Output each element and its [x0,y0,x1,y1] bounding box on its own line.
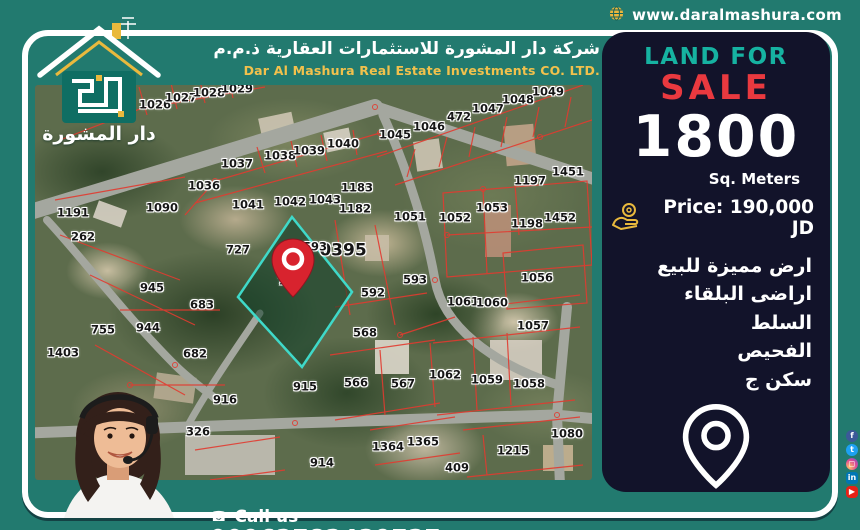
website-link[interactable]: www.daralmashura.com [632,6,842,24]
price-row: Price: 190,000 JD [602,197,830,239]
parcel-number: 1043 [309,194,341,206]
parcel-number: 1045 [379,129,411,141]
listing-description: ارض مميزة للبيع اراضى البلقاء السلط الفح… [602,252,830,395]
parcel-number: 1451 [552,166,584,178]
social-bar: ft◻in▶ [846,430,858,498]
facebook-icon[interactable]: f [846,430,858,442]
parcel-number: 472 [447,111,471,123]
parcel-number: 262 [71,231,95,243]
parcel-number: 1053 [476,202,508,214]
linkedin-icon[interactable]: in [846,472,858,484]
parcel-number: 1403 [47,347,79,359]
parcel-number: 593 [403,274,427,286]
sale-label: SALE [602,68,830,108]
phone-icon: ☎ [210,510,227,525]
parcel-number: 1452 [544,212,576,224]
parcel-number: 1040 [327,138,359,150]
parcel-number: 1090 [146,202,178,214]
desc-line: سكن ج [620,366,812,395]
parcel-number: 1197 [514,175,546,187]
parcel-number: 409 [445,462,469,474]
parcel-number: 1365 [407,436,439,448]
desc-line: اراضى البلقاء السلط [620,280,812,337]
parcel-number: 568 [353,327,377,339]
parcel-number: 1041 [232,199,264,211]
parcel-number: 1036 [188,180,220,192]
desc-line: الفحيص [620,337,812,366]
listing-panel: LAND FOR SALE 1800 Sq. Meters Price: 190… [602,32,830,492]
parcel-number: 1052 [439,212,471,224]
call-us-label: Call us [234,508,298,527]
contact-block: ☎ Call us 00962782439737 [210,508,441,530]
parcel-number: 1215 [497,445,529,457]
parcel-number: 915 [293,381,317,393]
map-location-pin-icon [270,237,316,299]
land-for-label: LAND FOR [602,44,830,70]
money-hand-icon [612,202,642,234]
parcel-number: 1056 [521,272,553,284]
logo-wordmark: دار المشورة [28,123,170,145]
area-value: 1800 [602,108,830,168]
parcel-number: 916 [213,394,237,406]
support-agent-photo [44,380,194,518]
globe-icon [609,6,624,25]
parcel-number: 1051 [394,211,426,223]
parcel-number: 567 [391,378,415,390]
parcel-number: 945 [140,282,164,294]
parcel-number: 1037 [221,158,253,170]
parcel-number: 1062 [429,369,461,381]
parcel-number: 566 [344,377,368,389]
parcel-number: 1047 [472,103,504,115]
price-label: Price: 190,000 JD [642,197,814,239]
parcel-number: 1059 [471,374,503,386]
company-header: شركة دار المشورة للاستثمارات العقارية ذ.… [213,39,600,78]
parcel-number: 1049 [532,86,564,98]
parcel-number: 727 [226,244,250,256]
parcel-number: 1057 [517,320,549,332]
parcel-number: 1198 [511,218,543,230]
company-logo: دار المشورة [28,13,170,153]
parcel-number: 944 [136,322,160,334]
parcel-number: 1046 [413,121,445,133]
location-name: الفحيص [602,490,830,492]
parcel-number: 1080 [551,428,583,440]
company-name-arabic: شركة دار المشورة للاستثمارات العقارية ذ.… [213,39,600,59]
parcel-number: 1364 [372,441,404,453]
parcel-number: 1061 [447,296,479,308]
parcel-number: 1048 [502,94,534,106]
location-pin-icon [602,402,830,490]
parcel-number: 914 [310,457,334,469]
parcel-number: 1060 [476,297,508,309]
company-name-english: Dar Al Mashura Real Estate Investments C… [213,63,600,78]
parcel-number: 1042 [274,196,306,208]
desc-line: ارض مميزة للبيع [620,252,812,281]
parcel-number: 1191 [57,207,89,219]
parcel-number: 755 [91,324,115,336]
instagram-icon[interactable]: ◻ [846,458,858,470]
parcel-number: 682 [183,348,207,360]
parcel-number: 1058 [513,378,545,390]
parcel-number: 592 [361,287,385,299]
twitter-icon[interactable]: t [846,444,858,456]
parcel-number: 1183 [341,182,373,194]
real-estate-flyer: www.daralmashura.com شركة دار المشورة لل… [0,0,860,530]
parcel-number: 1182 [339,203,371,215]
area-unit: Sq. Meters [602,170,830,188]
topbar: www.daralmashura.com [0,0,860,30]
parcel-number: 1039 [293,145,325,157]
parcel-number: 683 [190,299,214,311]
parcel-number: 1038 [264,150,296,162]
parcel-number: 1029 [221,85,253,95]
youtube-icon[interactable]: ▶ [846,486,858,498]
